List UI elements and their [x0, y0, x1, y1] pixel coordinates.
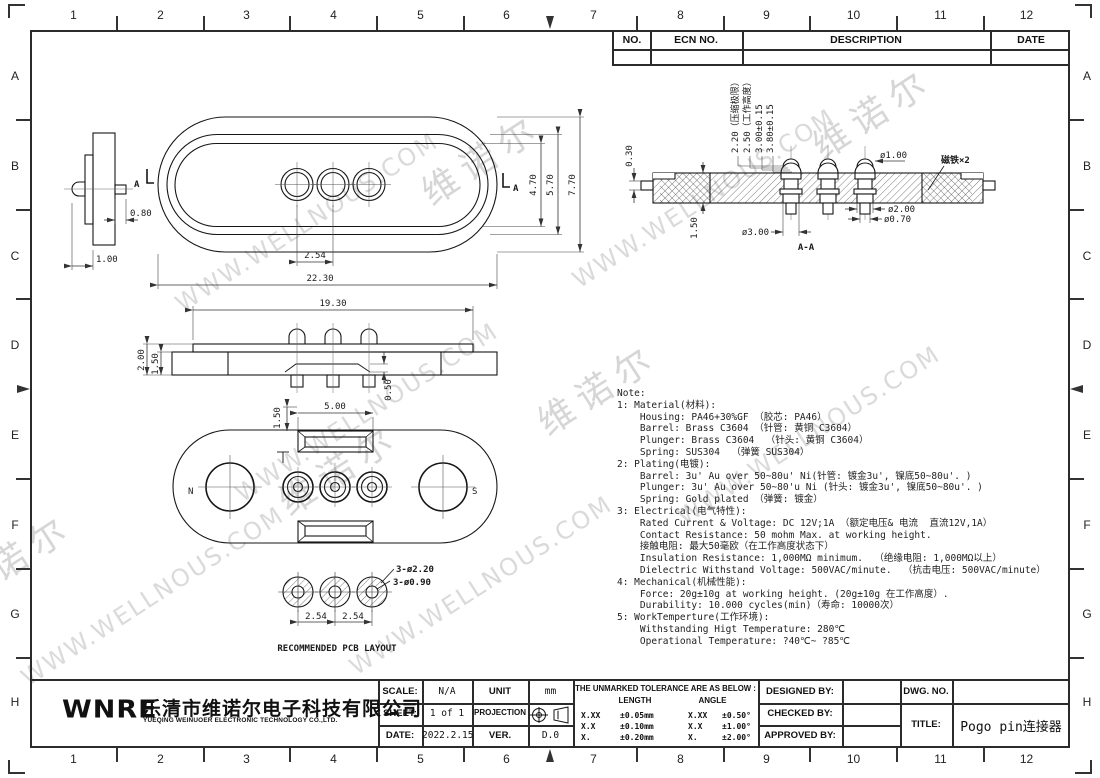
unit-label: UNIT — [472, 686, 528, 697]
grid-row-label: F — [6, 518, 24, 532]
tolerance-title: THE UNMARKED TOLERANCE ARE AS BELOW : — [573, 684, 758, 693]
tolerance-angle-label: ANGLE — [685, 696, 740, 705]
unit-value: mm — [528, 686, 573, 697]
title-block: WNRE 乐清市维诺尔电子科技有限公司 YUEQING WEINUOER ELE… — [30, 679, 1070, 746]
ecn-table: NO. ECN NO. DESCRIPTION DATE — [612, 32, 1070, 66]
pcb-caption: RECOMMENDED PCB LAYOUT — [277, 644, 397, 654]
grid-col-label: 8 — [637, 752, 724, 766]
grid-col-label: 4 — [290, 752, 377, 766]
grid-col-label: 5 — [377, 752, 464, 766]
dim-bottom-1-50: 1.50 — [273, 407, 283, 429]
grid-col-label: 3 — [203, 8, 290, 22]
grid-row-label: H — [1078, 695, 1096, 709]
checked-by-label: CHECKED BY: — [758, 708, 842, 719]
centering-arrow-left — [17, 385, 30, 393]
dim-front-0-50: 0.50 — [384, 379, 394, 401]
drawing-title: Pogo pin连接器 — [952, 716, 1070, 735]
tolerance-length-label: LENGTH — [605, 696, 665, 705]
bottom-view: N S 1.50 5.00 — [173, 402, 497, 543]
grid-col-label: 7 — [550, 8, 637, 22]
tol-cell: X.X — [581, 722, 595, 731]
approved-by-label: APPROVED BY: — [758, 730, 842, 741]
grid-row-label: A — [1078, 69, 1096, 83]
pcb-hole-label-0-90: 3-ø0.90 — [393, 578, 431, 588]
section-view: 2.20（压缩极限） 2.50（工作高度） 3.00±0.15 3.80±0.1… — [625, 77, 995, 253]
grid-col-label: 1 — [30, 8, 117, 22]
dim-sec-0-30: 0.30 — [625, 145, 635, 167]
corner-mark — [1075, 4, 1092, 18]
section-caption: A-A — [798, 243, 815, 253]
grid-row-label: D — [1078, 338, 1096, 352]
dim-sec-3-80: 3.80±0.15 — [766, 104, 776, 153]
dim-sec-3-00: 3.00±0.15 — [755, 104, 765, 153]
dim-sec-2-50: 2.50（工作高度） — [741, 77, 753, 153]
centering-arrow-bottom — [546, 749, 554, 762]
grid-row-label: H — [6, 695, 24, 709]
grid-col-label: 3 — [203, 752, 290, 766]
ecn-col-description: DESCRIPTION — [742, 34, 990, 46]
section-mark-a-right: A — [513, 184, 519, 194]
tol-cell: X. — [688, 733, 698, 742]
dim-bottom-5-00: 5.00 — [324, 402, 346, 412]
grid-col-label: 4 — [290, 8, 377, 22]
tol-cell: ±2.00° — [722, 733, 751, 742]
grid-row-label: C — [6, 249, 24, 263]
section-mark-a-left: A — [134, 180, 140, 190]
dim-top-5-70: 5.70 — [546, 174, 556, 196]
tol-cell: ±0.50° — [722, 711, 751, 720]
dim-top-22-30: 22.30 — [306, 274, 333, 284]
corner-mark — [8, 760, 25, 774]
ecn-col-date: DATE — [990, 34, 1072, 46]
grid-col-label: 5 — [377, 8, 464, 22]
grid-col-label: 10 — [810, 8, 897, 22]
company-name-en: YUEQING WEINUOER ELECTRONIC TECHNOLOGY C… — [143, 717, 338, 724]
magnet-callout: 磁铁×2 — [941, 154, 970, 166]
grid-col-label: 6 — [463, 8, 550, 22]
date-label: DATE: — [378, 730, 422, 741]
grid-col-label: 10 — [810, 752, 897, 766]
projection-label: PROJECTION — [472, 708, 528, 717]
grid-col-label: 8 — [637, 8, 724, 22]
grid-col-label: 11 — [897, 8, 984, 22]
centering-arrow-top — [546, 16, 554, 29]
dim-front-1-50: 1.50 — [151, 353, 161, 375]
bottom-pins — [278, 467, 392, 507]
dim-sec-o1-00: ø1.00 — [880, 151, 907, 161]
tol-cell: X. — [581, 733, 591, 742]
dim-sec-o0-70: ø0.70 — [884, 215, 911, 225]
grid-row-label: D — [6, 338, 24, 352]
corner-mark — [1075, 760, 1092, 774]
pole-label-n: N — [188, 487, 193, 497]
dim-pcb-2-54-a: 2.54 — [305, 612, 327, 622]
ver-value: D.0 — [528, 730, 573, 741]
grid-col-label: 12 — [983, 752, 1070, 766]
notes-block: Note: 1: Material(材料): Housing: PA46+30%… — [617, 388, 1046, 648]
grid-row-label: B — [6, 159, 24, 173]
grid-col-label: 2 — [117, 8, 204, 22]
dim-side-1-00: 1.00 — [96, 255, 118, 265]
sheet-value: 1 of 1 — [422, 708, 472, 719]
grid-col-label: 12 — [983, 8, 1070, 22]
dim-sec-o2-00: ø2.00 — [888, 205, 915, 215]
pcb-layout: 3-ø2.20 3-ø0.90 2.54 2.54 RECOMMENDED PC… — [277, 565, 434, 654]
dwg-no-label: DWG. NO. — [900, 686, 952, 697]
grid-row-label: G — [6, 607, 24, 621]
drawing-sheet: WWW.WELLNOUS.COM 维诺尔 维诺尔 WWW.WELLNOUS.CO… — [0, 0, 1100, 778]
pcb-hole-label-2-20: 3-ø2.20 — [396, 565, 434, 575]
grid-col-label: 2 — [117, 752, 204, 766]
dim-sec-o3-00: ø3.00 — [742, 228, 769, 238]
centering-arrow-right — [1070, 385, 1083, 393]
corner-mark — [8, 4, 25, 18]
grid-col-label: 6 — [463, 752, 550, 766]
grid-row-label: G — [1078, 607, 1096, 621]
tol-cell: X.XX — [581, 711, 600, 720]
tol-cell: ±1.00° — [722, 722, 751, 731]
grid-row-label: A — [6, 69, 24, 83]
sheet-label: SHEET: — [378, 708, 422, 719]
third-angle-projection-icon — [530, 706, 572, 729]
grid-col-label: 11 — [897, 752, 984, 766]
top-view: A A 2.54 22.30 4.70 5.70 — [134, 117, 584, 289]
ecn-col-no: NO. — [614, 34, 650, 46]
tol-cell: X.XX — [688, 711, 707, 720]
grid-col-label: 9 — [723, 8, 810, 22]
tol-cell: X.X — [688, 722, 702, 731]
dim-sec-2-20: 2.20（压缩极限） — [729, 77, 741, 153]
title-label: TITLE: — [900, 719, 952, 730]
dim-pcb-2-54-b: 2.54 — [342, 612, 364, 622]
date-value: 2022.2.15 — [422, 730, 472, 741]
pole-label-s: S — [472, 487, 477, 497]
ver-label: VER. — [472, 730, 528, 741]
grid-row-label: B — [1078, 159, 1096, 173]
ecn-col-ecn-no: ECN NO. — [650, 34, 742, 46]
grid-col-label: 9 — [723, 752, 810, 766]
front-pins — [289, 323, 377, 393]
scale-value: N/A — [422, 686, 472, 697]
tol-cell: ±0.10mm — [620, 722, 654, 731]
grid-row-label: E — [1078, 428, 1096, 442]
dim-top-2-54: 2.54 — [304, 251, 326, 261]
tol-cell: ±0.05mm — [620, 711, 654, 720]
front-view: 19.30 2.00 1.50 0.50 — [137, 299, 497, 401]
grid-col-label: 7 — [550, 752, 637, 766]
dim-sec-1-50: 1.50 — [690, 217, 700, 239]
dim-top-7-70: 7.70 — [568, 174, 578, 196]
dim-front-2-00: 2.00 — [137, 349, 147, 371]
side-view: 0.80 1.00 — [64, 133, 152, 270]
dim-top-4-70: 4.70 — [529, 174, 539, 196]
grid-col-label: 1 — [30, 752, 117, 766]
pcb-pads — [278, 572, 392, 612]
designed-by-label: DESIGNED BY: — [758, 686, 842, 697]
scale-label: SCALE: — [378, 686, 422, 697]
tol-cell: ±0.20mm — [620, 733, 654, 742]
dim-front-19-30: 19.30 — [319, 299, 346, 309]
grid-row-label: F — [1078, 518, 1096, 532]
grid-row-label: E — [6, 428, 24, 442]
grid-row-label: C — [1078, 249, 1096, 263]
dim-side-0-80: 0.80 — [130, 209, 152, 219]
pin-holes — [275, 162, 391, 207]
